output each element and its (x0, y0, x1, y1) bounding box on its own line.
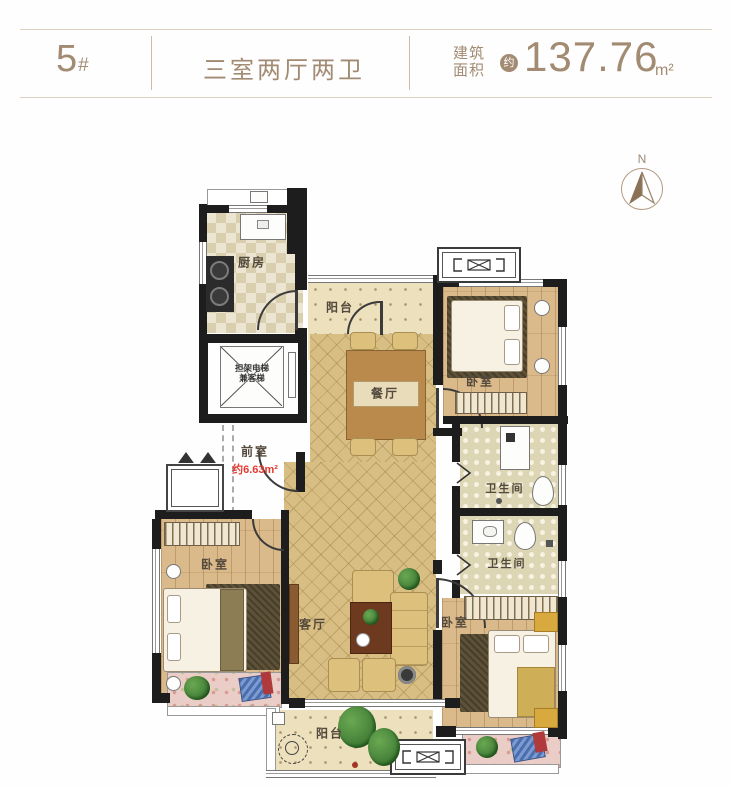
pillow (504, 339, 520, 365)
accessory-icon (546, 540, 553, 547)
front-room-label: 前室 (241, 443, 269, 460)
wall-segment (199, 343, 208, 423)
toilet-icon (514, 522, 536, 550)
sliding-door (305, 699, 445, 707)
ac-unit-icon (437, 247, 521, 283)
elevator-panel (288, 352, 296, 398)
floor-lamp-icon (398, 666, 416, 684)
vent-triangle-icon (200, 452, 216, 463)
window (558, 561, 566, 597)
wall-segment (433, 560, 442, 574)
wall-segment (436, 726, 456, 737)
armchair (352, 570, 394, 604)
unit-number-value: 5 (56, 38, 78, 80)
header-divider-2 (409, 36, 410, 90)
plant-icon (363, 609, 379, 625)
wall-segment (295, 254, 307, 290)
ac-unit-glyph (395, 744, 461, 770)
stove-icon (206, 256, 234, 312)
floorplan-page: 5# 三室两厅两卫 建筑 面积 约 137.76 m² N (0, 0, 732, 787)
wall-segment (298, 343, 307, 414)
wall-segment (287, 188, 307, 254)
shower (500, 426, 530, 470)
plant-icon (184, 676, 210, 700)
door-leaf (380, 301, 383, 335)
compass: N (616, 152, 668, 210)
faucet-icon (257, 220, 269, 229)
equipment-platform (166, 464, 224, 512)
nightstand (534, 358, 550, 374)
nightstand (534, 708, 558, 728)
wall-segment (199, 414, 307, 423)
washing-machine-icon (278, 734, 308, 764)
wall-segment (267, 205, 287, 213)
wall-segment (452, 424, 460, 462)
door-leaf (436, 388, 439, 428)
plant-icon (368, 728, 400, 766)
wall-segment (199, 204, 207, 242)
wall-segment (152, 519, 161, 549)
dish-icon (356, 633, 370, 647)
window (152, 549, 160, 653)
wall-segment (445, 698, 461, 708)
header-top-rule (20, 29, 712, 30)
pillow (167, 595, 181, 623)
area-value: 137.76 (524, 33, 658, 81)
area-unit: m² (655, 62, 674, 80)
flowerbed-left-rail (167, 706, 280, 716)
shower-head-icon (506, 433, 515, 442)
wall-segment (558, 279, 567, 327)
wall-segment (152, 653, 161, 695)
kitchen-label: 厨房 (238, 254, 266, 271)
front-room-area-label: 约6.63m² (232, 461, 278, 477)
vent-triangle-icon (178, 452, 194, 463)
dining-chair (392, 438, 418, 456)
wall-segment (289, 698, 305, 708)
entry-door-icon (250, 191, 268, 203)
pillow (167, 633, 181, 661)
unit-number: 5# (56, 38, 90, 81)
wall-segment (558, 597, 567, 645)
wall-segment (152, 693, 170, 703)
bedroom-top-right-label: 卧室 (466, 373, 494, 390)
wardrobe (455, 392, 527, 414)
bedroom-left-label: 卧室 (201, 556, 229, 573)
window (558, 645, 566, 691)
bathroom-bottom-door-icon (456, 554, 472, 576)
window (558, 327, 566, 385)
header-bottom-rule (20, 97, 712, 98)
wall-segment (207, 205, 229, 213)
tv-cabinet (289, 584, 299, 664)
north-arrow-icon (621, 168, 663, 210)
flowerbed-right-rail (462, 764, 559, 774)
kitchen-sink (240, 214, 286, 240)
bed (488, 630, 556, 718)
unit-number-suffix: # (78, 55, 90, 76)
burner-icon (210, 287, 229, 306)
compass-north-label: N (616, 152, 668, 166)
armchair (328, 658, 360, 692)
balcony-bottom-label: 阳台 (316, 725, 344, 742)
wall-segment (452, 486, 460, 554)
wall-segment (199, 334, 307, 343)
toilet-icon (532, 476, 554, 506)
elevator-label-line2: 兼客梯 (221, 373, 283, 383)
utility-box-icon (272, 712, 285, 725)
washer-drum-icon (285, 741, 299, 755)
coffee-table (350, 602, 392, 654)
basin-icon (483, 526, 497, 537)
dining-chair (350, 438, 376, 456)
area-label-line2: 面积 (453, 62, 485, 79)
dining-chair (350, 332, 376, 350)
bathroom-bottom-label: 卫生间 (488, 555, 527, 571)
floor-drain-icon (496, 498, 502, 504)
elevator-label-line1: 担架电梯 (221, 363, 283, 373)
burner-icon (210, 261, 229, 280)
pillow (504, 305, 520, 331)
wall-segment (433, 630, 442, 704)
wall-segment (443, 416, 568, 424)
plant-icon (476, 736, 498, 758)
nightstand (166, 564, 181, 579)
living-room-label: 客厅 (299, 616, 327, 633)
pillow (523, 635, 549, 653)
header-divider-1 (151, 36, 152, 90)
bed (163, 588, 247, 672)
wall-segment (433, 275, 443, 385)
armchair (362, 658, 396, 692)
nightstand (534, 300, 550, 316)
bathroom-top-label: 卫生间 (486, 480, 525, 496)
nightstand (534, 612, 558, 632)
elevator-label: 担架电梯 兼客梯 (221, 363, 283, 383)
ac-unit-icon (390, 739, 466, 775)
equipment-platform-inner (171, 469, 219, 507)
wardrobe (164, 522, 240, 546)
wall-segment (558, 385, 567, 465)
blanket (220, 589, 244, 671)
flower-dot (352, 762, 358, 768)
bathroom-sink (472, 520, 504, 544)
area-label-line1: 建筑 (453, 45, 485, 62)
pillow (494, 635, 520, 653)
plant-icon (398, 568, 420, 590)
sofa (390, 592, 428, 666)
bathroom-top-door-icon (456, 462, 472, 484)
bed (451, 300, 523, 372)
window (558, 465, 566, 505)
ac-unit-glyph (442, 252, 516, 278)
dining-chair (392, 332, 418, 350)
dining-label: 餐厅 (371, 385, 399, 402)
bedroom-bottom-right-label: 卧室 (441, 614, 469, 631)
layout-type: 三室两厅两卫 (203, 50, 365, 85)
approx-badge: 约 (500, 54, 518, 72)
window (308, 275, 435, 283)
nightstand (166, 676, 181, 691)
balcony-top-label: 阳台 (326, 299, 354, 316)
wall-segment (452, 508, 567, 516)
window (229, 205, 267, 213)
